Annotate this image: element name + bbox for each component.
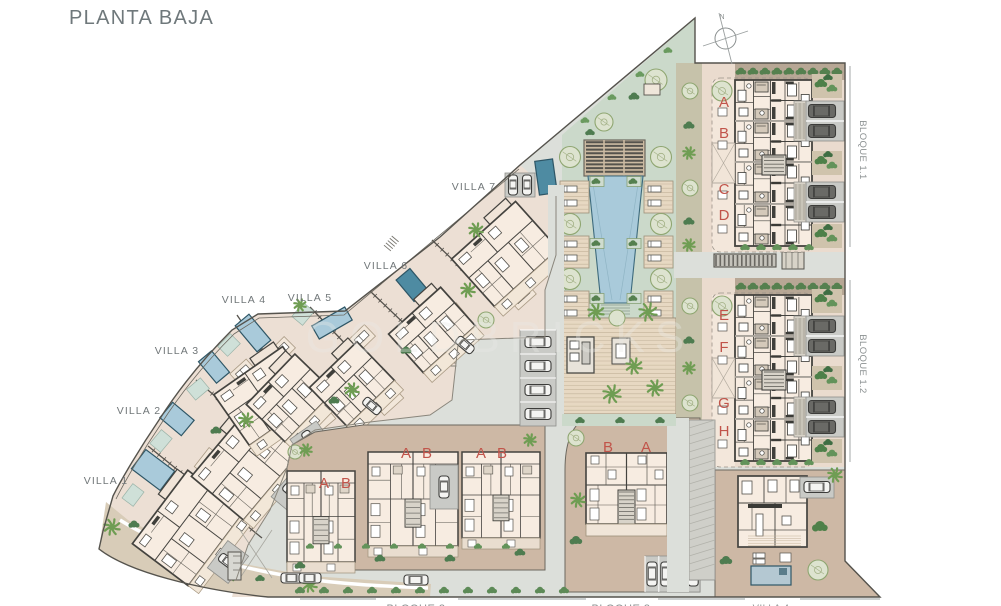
svg-text:PLANTA BAJA: PLANTA BAJA: [69, 7, 214, 29]
svg-text:A: A: [719, 94, 729, 111]
svg-text:B: B: [603, 439, 613, 456]
svg-text:VILLA 5: VILLA 5: [288, 292, 332, 304]
svg-text:VILLA 7: VILLA 7: [452, 181, 496, 193]
svg-text:C: C: [719, 181, 730, 198]
svg-text:N: N: [719, 14, 724, 21]
svg-text:D: D: [719, 207, 730, 224]
svg-text:F: F: [719, 339, 728, 356]
svg-text:G: G: [718, 395, 730, 412]
svg-text:B: B: [497, 445, 507, 462]
svg-text:BLOQUE 1.2: BLOQUE 1.2: [857, 334, 868, 393]
svg-text:B: B: [719, 125, 729, 142]
svg-text:A: A: [476, 445, 486, 462]
svg-text:GOLDBRICKS: GOLDBRICKS: [306, 313, 695, 362]
svg-text:VILLA 1: VILLA 1: [84, 475, 128, 487]
svg-text:A: A: [641, 439, 651, 456]
svg-text:E: E: [719, 307, 729, 324]
svg-text:H: H: [719, 423, 730, 440]
svg-text:VILLA 2: VILLA 2: [117, 405, 161, 417]
svg-text:VILLA 3: VILLA 3: [155, 345, 199, 357]
svg-text:VILLA 4: VILLA 4: [222, 294, 266, 306]
svg-text:A: A: [319, 475, 329, 492]
svg-text:B: B: [341, 475, 351, 492]
svg-text:B: B: [422, 445, 432, 462]
svg-text:VILLA 6: VILLA 6: [364, 260, 408, 272]
svg-text:BLOQUE 1.1: BLOQUE 1.1: [857, 120, 868, 179]
svg-text:A: A: [401, 445, 411, 462]
